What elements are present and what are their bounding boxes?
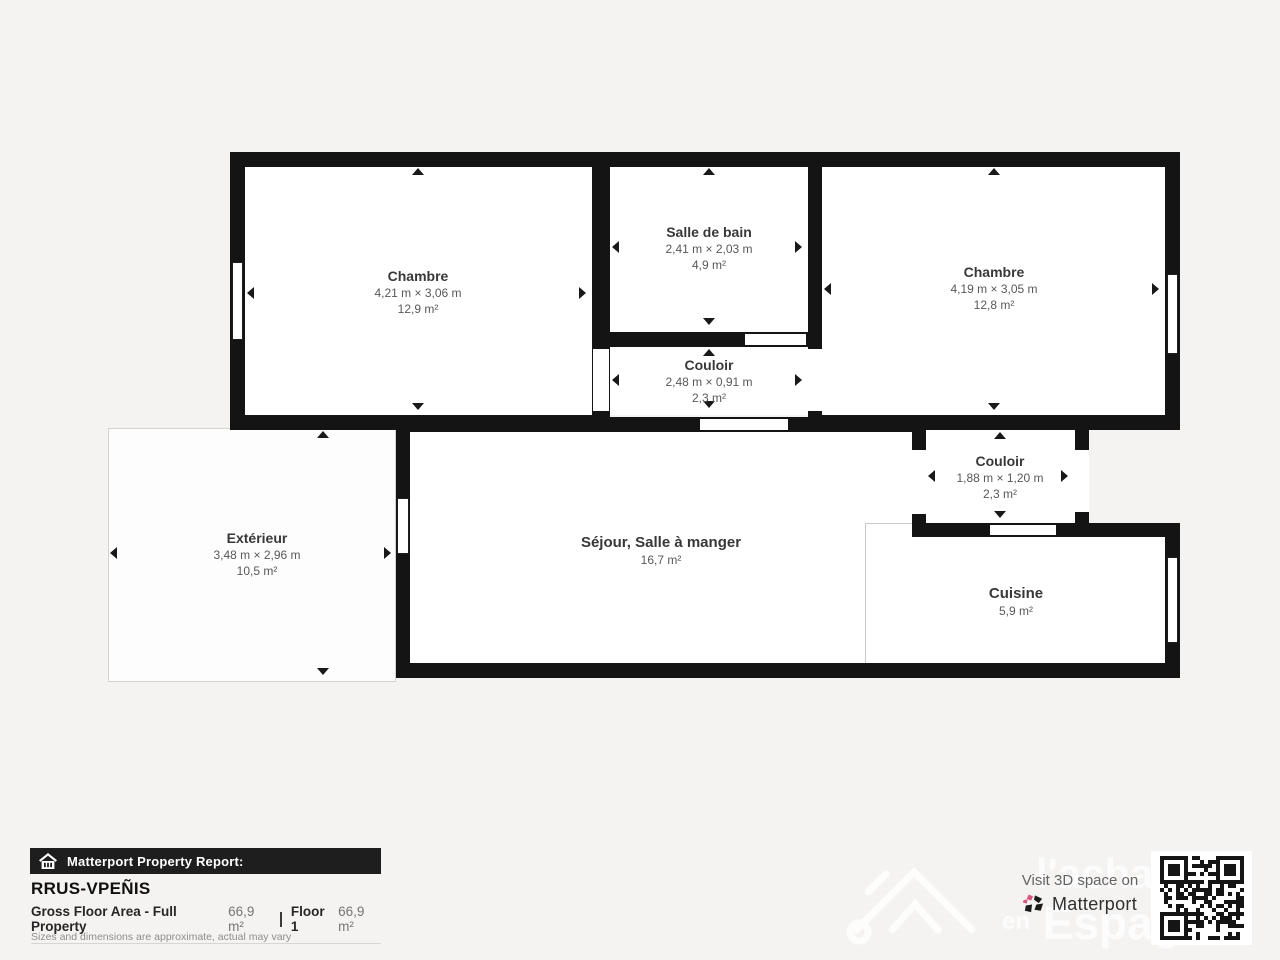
door-opening-couloir-sejour [700, 419, 788, 430]
wall-top-outer [230, 152, 1180, 167]
room-name: Chambre [950, 263, 1037, 281]
door-opening-couloir-east [808, 349, 822, 411]
measure-arrow-icon [703, 349, 715, 356]
room-dimensions: 4,19 m × 3,05 m [950, 281, 1037, 297]
room-name: Extérieur [213, 529, 300, 547]
room-name: Couloir [665, 356, 752, 374]
window-chambre-left [232, 262, 243, 340]
wall-sejour-top [396, 417, 926, 432]
matterport-pinwheel-icon [1022, 893, 1045, 916]
measure-arrow-icon [412, 403, 424, 410]
qr-code[interactable] [1151, 851, 1252, 945]
property-id: RRUS-VPEÑIS [31, 879, 151, 899]
floorplan-report-page: Chambre 4,21 m × 3,06 m 12,9 m² Salle de… [0, 0, 1280, 960]
room-label-couloir-right: Couloir 1,88 m × 1,20 m 2,3 m² [956, 452, 1043, 502]
report-banner: Matterport Property Report: [30, 848, 381, 874]
openplan-line-cuisine-vertical [865, 523, 866, 663]
matterport-wordmark: Matterport [1052, 894, 1137, 915]
gross-floor-area-label: Gross Floor Area - Full Property [31, 904, 223, 934]
measure-arrow-icon [1061, 470, 1068, 482]
room-area: 10,5 m² [213, 563, 300, 579]
room-dimensions: 2,41 m × 2,03 m [665, 241, 752, 257]
room-name: Séjour, Salle à manger [581, 534, 741, 552]
report-banner-title: Matterport Property Report: [67, 854, 244, 869]
measure-arrow-icon [579, 287, 586, 299]
measure-arrow-icon [928, 470, 935, 482]
door-opening-bain [745, 334, 806, 345]
room-dimensions: 4,21 m × 3,06 m [374, 285, 461, 301]
measure-arrow-icon [247, 287, 254, 299]
measure-arrow-icon [824, 283, 831, 295]
room-dimensions: 1,88 m × 1,20 m [956, 470, 1043, 486]
measure-arrow-icon [110, 547, 117, 559]
room-label-cuisine: Cuisine 5,9 m² [989, 585, 1043, 619]
measure-arrow-icon [703, 318, 715, 325]
gross-floor-area-value: 66,9 m² [228, 904, 271, 934]
measure-arrow-icon [612, 241, 619, 253]
window-cuisine [1167, 557, 1178, 643]
window-chambre-right [1167, 274, 1178, 354]
room-label-sejour: Séjour, Salle à manger 16,7 m² [581, 534, 741, 568]
door-opening-couloir2-west [912, 450, 926, 514]
room-dimensions: 3,48 m × 2,96 m [213, 547, 300, 563]
matterport-link[interactable]: Matterport [1022, 893, 1137, 916]
room-label-salle-de-bain: Salle de bain 2,41 m × 2,03 m 4,9 m² [665, 223, 752, 273]
room-dimensions: 2,48 m × 0,91 m [665, 374, 752, 390]
measure-arrow-icon [988, 168, 1000, 175]
room-label-chambre-left: Chambre 4,21 m × 3,06 m 12,9 m² [374, 267, 461, 317]
room-name: Salle de bain [665, 223, 752, 241]
disclaimer-text: Sizes and dimensions are approximate, ac… [31, 931, 291, 943]
qr-code-modules [1160, 856, 1244, 940]
measure-arrow-icon [1152, 283, 1159, 295]
measure-arrow-icon [612, 374, 619, 386]
measure-arrow-icon [994, 432, 1006, 439]
room-area: 16,7 m² [581, 552, 741, 568]
floor-value: 66,9 m² [338, 904, 381, 934]
measure-arrow-icon [795, 241, 802, 253]
window-sejour [397, 498, 409, 554]
room-area: 2,3 m² [665, 390, 752, 406]
room-area: 2,3 m² [956, 486, 1043, 502]
measure-arrow-icon [412, 168, 424, 175]
room-name: Chambre [374, 267, 461, 285]
agency-house-watermark-icon [838, 850, 998, 959]
floor-label: Floor 1 [291, 904, 333, 934]
wall-bottom-outer [396, 663, 1180, 678]
house-icon [39, 853, 57, 869]
measure-arrow-icon [317, 431, 329, 438]
room-name: Cuisine [989, 585, 1043, 603]
measure-arrow-icon [994, 511, 1006, 518]
measure-arrow-icon [703, 168, 715, 175]
room-area: 12,9 m² [374, 301, 461, 317]
door-opening-couloir2-east [1075, 450, 1089, 512]
door-opening-couloir2-cuisine [990, 525, 1056, 535]
room-label-exterieur: Extérieur 3,48 m × 2,96 m 10,5 m² [213, 529, 300, 579]
measure-arrow-icon [795, 374, 802, 386]
room-area: 5,9 m² [989, 603, 1043, 619]
room-area: 4,9 m² [665, 257, 752, 273]
openplan-line-cuisine-horizontal [865, 523, 912, 524]
room-label-couloir-top: Couloir 2,48 m × 0,91 m 2,3 m² [665, 356, 752, 406]
room-name: Couloir [956, 452, 1043, 470]
measure-arrow-icon [317, 668, 329, 675]
measure-arrow-icon [384, 547, 391, 559]
room-area: 12,8 m² [950, 297, 1037, 313]
divider [280, 912, 282, 927]
door-opening-couloir-west [593, 349, 609, 411]
visit-3d-space-text: Visit 3D space on [1019, 872, 1141, 889]
room-label-chambre-right: Chambre 4,19 m × 3,05 m 12,8 m² [950, 263, 1037, 313]
measure-arrow-icon [988, 403, 1000, 410]
